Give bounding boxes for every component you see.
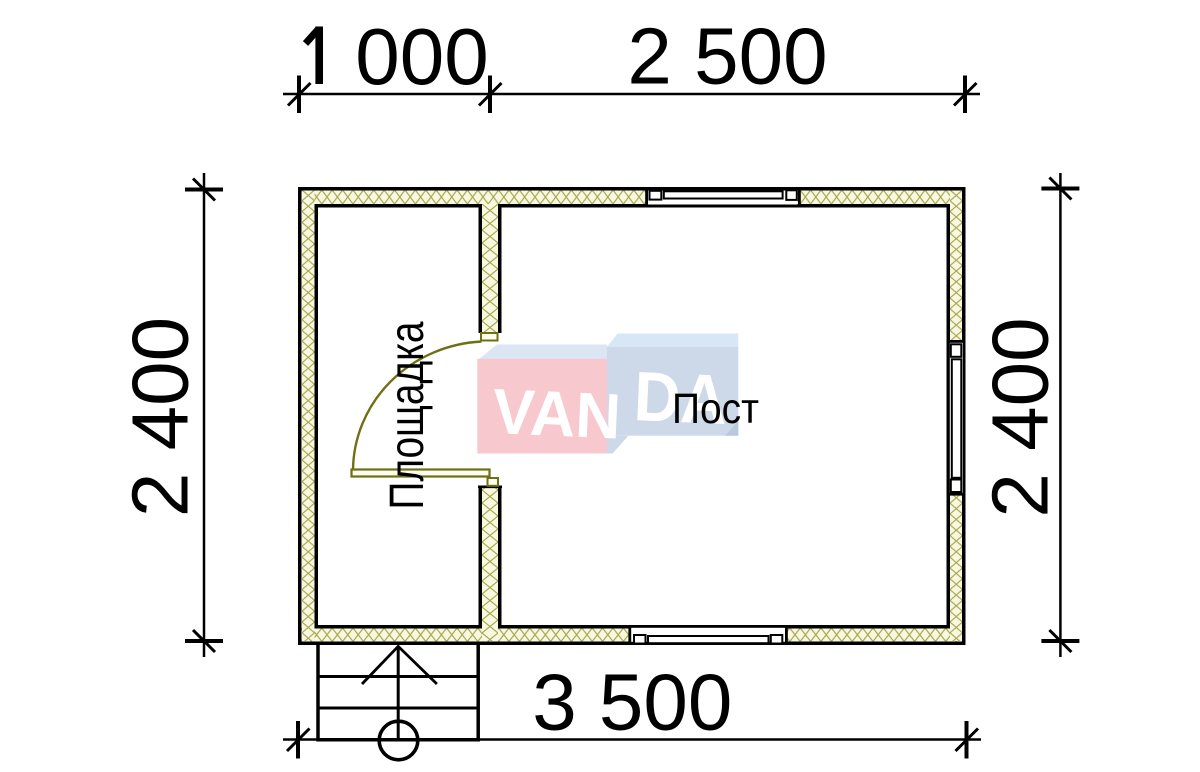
svg-text:3 500: 3 500: [532, 658, 732, 747]
svg-text:2 500: 2 500: [627, 12, 827, 101]
svg-text:VAN: VAN: [491, 375, 622, 453]
svg-text:000: 000: [355, 12, 488, 101]
svg-text:Площадка: Площадка: [381, 321, 434, 509]
svg-text:Пост: Пост: [672, 386, 759, 433]
svg-text:2 400: 2 400: [116, 317, 205, 517]
svg-text:2 400: 2 400: [976, 317, 1065, 517]
